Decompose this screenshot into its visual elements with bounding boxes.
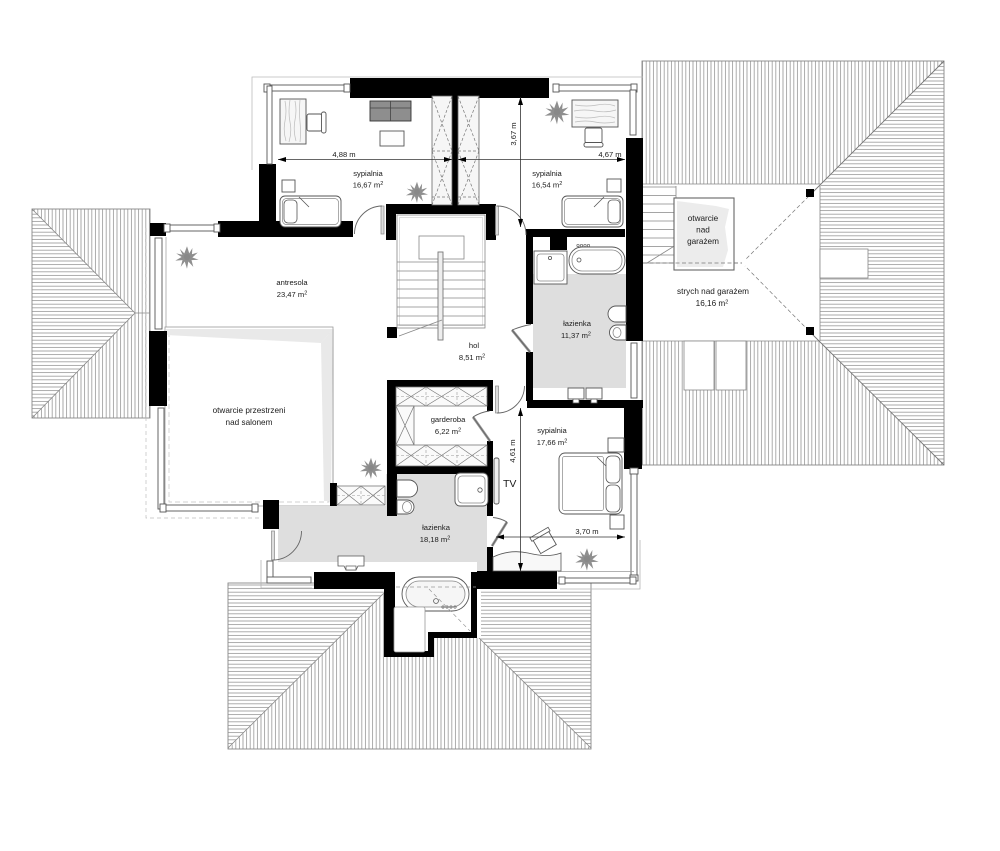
- svg-text:garderoba: garderoba: [431, 415, 466, 424]
- svg-text:otwarcie przestrzeni: otwarcie przestrzeni: [213, 406, 286, 415]
- svg-text:sypialnia: sypialnia: [353, 169, 383, 178]
- svg-text:sypialnia: sypialnia: [532, 169, 562, 178]
- svg-text:4,61 m: 4,61 m: [508, 439, 517, 462]
- svg-text:łazienka: łazienka: [563, 319, 592, 328]
- svg-text:antresola: antresola: [276, 278, 308, 287]
- svg-text:11,37 m2: 11,37 m2: [561, 331, 591, 340]
- svg-text:16,16 m2: 16,16 m2: [696, 299, 729, 308]
- svg-text:hol: hol: [469, 341, 479, 350]
- svg-text:TV: TV: [503, 478, 516, 490]
- svg-text:17,66 m2: 17,66 m2: [537, 438, 568, 447]
- svg-text:18,18 m2: 18,18 m2: [420, 535, 451, 544]
- svg-text:23,47 m2: 23,47 m2: [277, 290, 308, 299]
- svg-text:8,51 m2: 8,51 m2: [459, 353, 485, 362]
- svg-text:nad salonem: nad salonem: [226, 418, 273, 427]
- svg-text:4,67 m: 4,67 m: [598, 150, 621, 159]
- svg-text:16,67 m2: 16,67 m2: [353, 181, 384, 190]
- svg-text:6,22 m2: 6,22 m2: [435, 427, 461, 436]
- svg-text:3,70 m: 3,70 m: [575, 527, 598, 536]
- svg-text:3,67 m: 3,67 m: [509, 122, 518, 145]
- svg-text:łazienka: łazienka: [422, 523, 451, 532]
- svg-text:garażem: garażem: [687, 237, 719, 246]
- svg-text:nad: nad: [696, 226, 710, 235]
- svg-text:16,54 m2: 16,54 m2: [532, 181, 563, 190]
- svg-text:sypialnia: sypialnia: [537, 426, 567, 435]
- svg-text:4,88 m: 4,88 m: [332, 150, 355, 159]
- svg-text:otwarcie: otwarcie: [688, 214, 719, 223]
- svg-text:strych nad garażem: strych nad garażem: [677, 287, 749, 296]
